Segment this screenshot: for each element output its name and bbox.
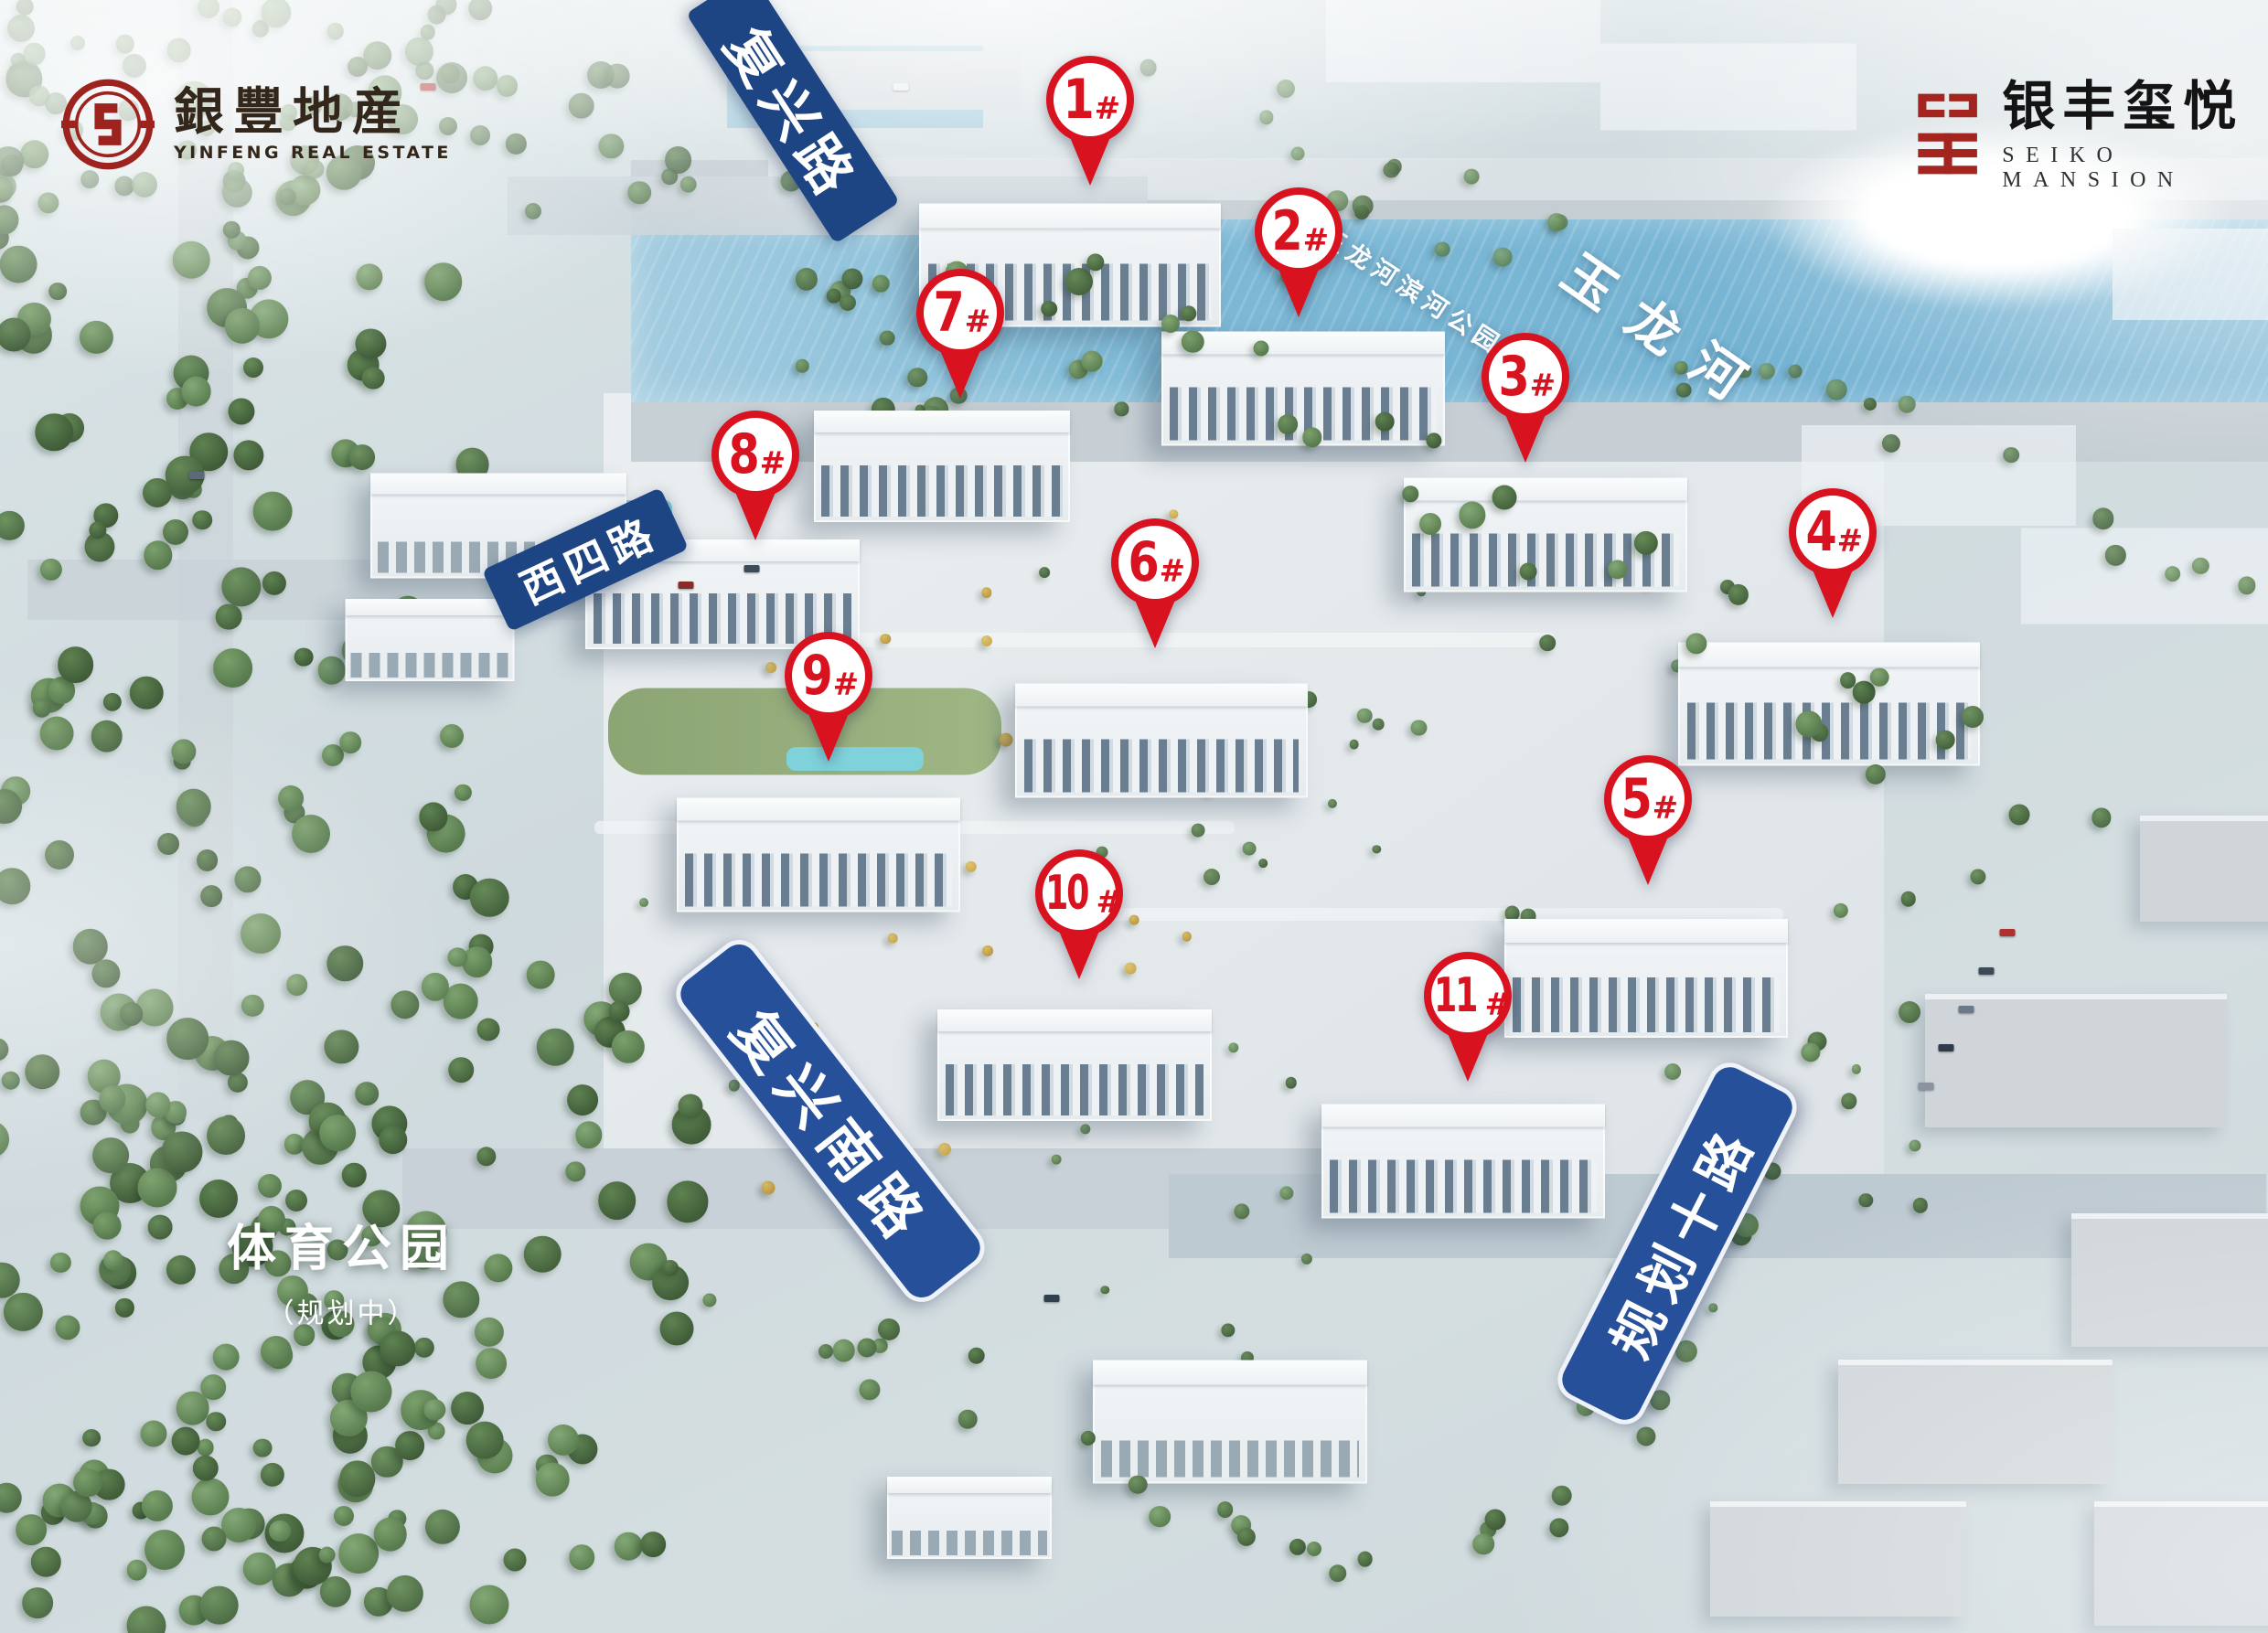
marker-hash: #: [1160, 556, 1186, 587]
marker-circle: 7#: [916, 269, 1004, 357]
seiko-mansion-seal-icon: [1915, 79, 1980, 185]
marker-circle: 1#: [1046, 56, 1134, 144]
marker-circle: 6#: [1111, 518, 1199, 606]
building-marker-1[interactable]: 1#: [1044, 56, 1136, 186]
marker-number: 4: [1805, 505, 1835, 560]
yinfeng-logo-english: YINFENG REAL ESTATE: [174, 143, 452, 163]
marker-circle: 11#: [1424, 952, 1512, 1040]
marker-number: 8: [728, 427, 757, 482]
marker-hash: #: [1837, 526, 1864, 557]
marker-circle: 10#: [1035, 849, 1123, 937]
marker-hash: #: [1653, 793, 1679, 824]
marker-circle: 3#: [1482, 333, 1569, 421]
marker-number: 6: [1128, 535, 1157, 590]
seiko-mansion-logo-english: SEIKO MANSION: [2002, 144, 2268, 193]
yinfeng-logo-chinese: 銀豐地産: [174, 86, 452, 139]
building-marker-2[interactable]: 2#: [1253, 187, 1344, 317]
building-markers-layer: 1#2#3#4#5#6#7#8#9#10#11#: [0, 0, 2268, 1633]
marker-hash: #: [965, 306, 991, 337]
building-marker-8[interactable]: 8#: [710, 411, 801, 540]
seiko-mansion-logo-chinese: 银丰玺悦: [2002, 79, 2268, 134]
marker-circle: 8#: [711, 411, 799, 498]
marker-circle: 5#: [1604, 755, 1692, 843]
marker-hash: #: [760, 448, 786, 479]
marker-number: 7: [933, 285, 962, 340]
seiko-mansion-logo: 银丰玺悦 SEIKO MANSION: [1915, 79, 2268, 193]
building-marker-9[interactable]: 9#: [783, 632, 874, 762]
marker-number: 10: [1045, 870, 1087, 917]
marker-hash: #: [1096, 887, 1122, 918]
marker-hash: #: [1530, 370, 1557, 401]
marker-circle: 2#: [1255, 187, 1343, 275]
marker-hash: #: [1095, 93, 1121, 124]
masterplan-aerial-view: 复兴路西四路复兴南路规划十路玉龙河玉龙河滨河公园 体育公园 （规划中） 1#2#…: [0, 0, 2268, 1633]
marker-hash: #: [833, 669, 860, 700]
building-marker-4[interactable]: 4#: [1787, 488, 1878, 618]
building-marker-6[interactable]: 6#: [1109, 518, 1201, 648]
marker-hash: #: [1303, 225, 1330, 256]
yinfeng-seal-icon: [60, 77, 155, 172]
marker-number: 3: [1498, 349, 1527, 404]
building-marker-11[interactable]: 11#: [1422, 952, 1514, 1082]
building-marker-10[interactable]: 10#: [1033, 849, 1125, 979]
marker-number: 9: [801, 648, 830, 703]
marker-number: 1: [1063, 72, 1092, 127]
building-marker-7[interactable]: 7#: [915, 269, 1006, 399]
marker-number: 11: [1434, 972, 1476, 1019]
marker-hash: #: [1484, 989, 1511, 1020]
marker-number: 2: [1271, 204, 1300, 259]
yinfeng-real-estate-logo: 銀豐地産 YINFENG REAL ESTATE: [60, 77, 452, 172]
marker-circle: 9#: [785, 632, 872, 720]
marker-number: 5: [1621, 772, 1650, 827]
building-marker-5[interactable]: 5#: [1602, 755, 1694, 885]
marker-circle: 4#: [1789, 488, 1877, 576]
building-marker-3[interactable]: 3#: [1480, 333, 1571, 463]
